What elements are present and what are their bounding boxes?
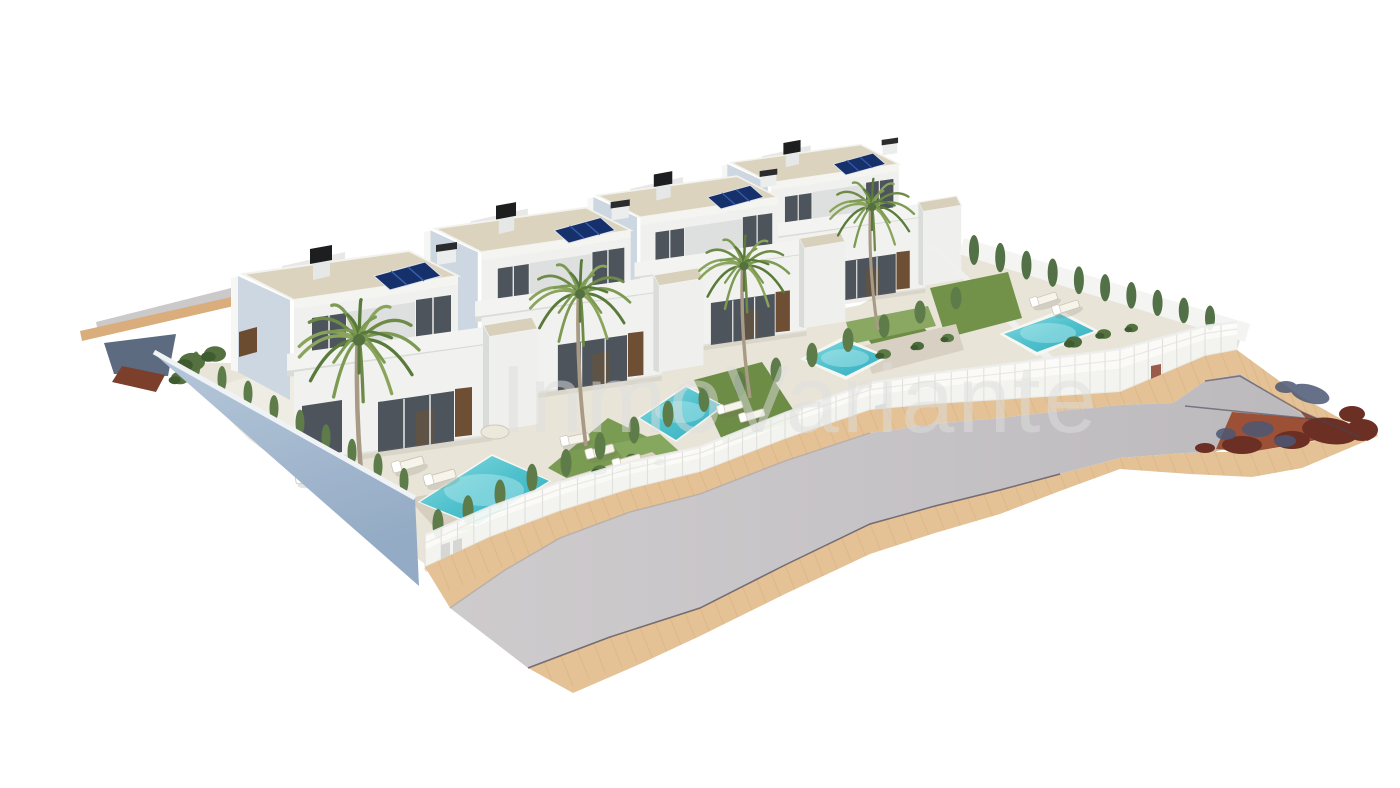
svg-text:InmoVariante: InmoVariante [500, 346, 1100, 453]
